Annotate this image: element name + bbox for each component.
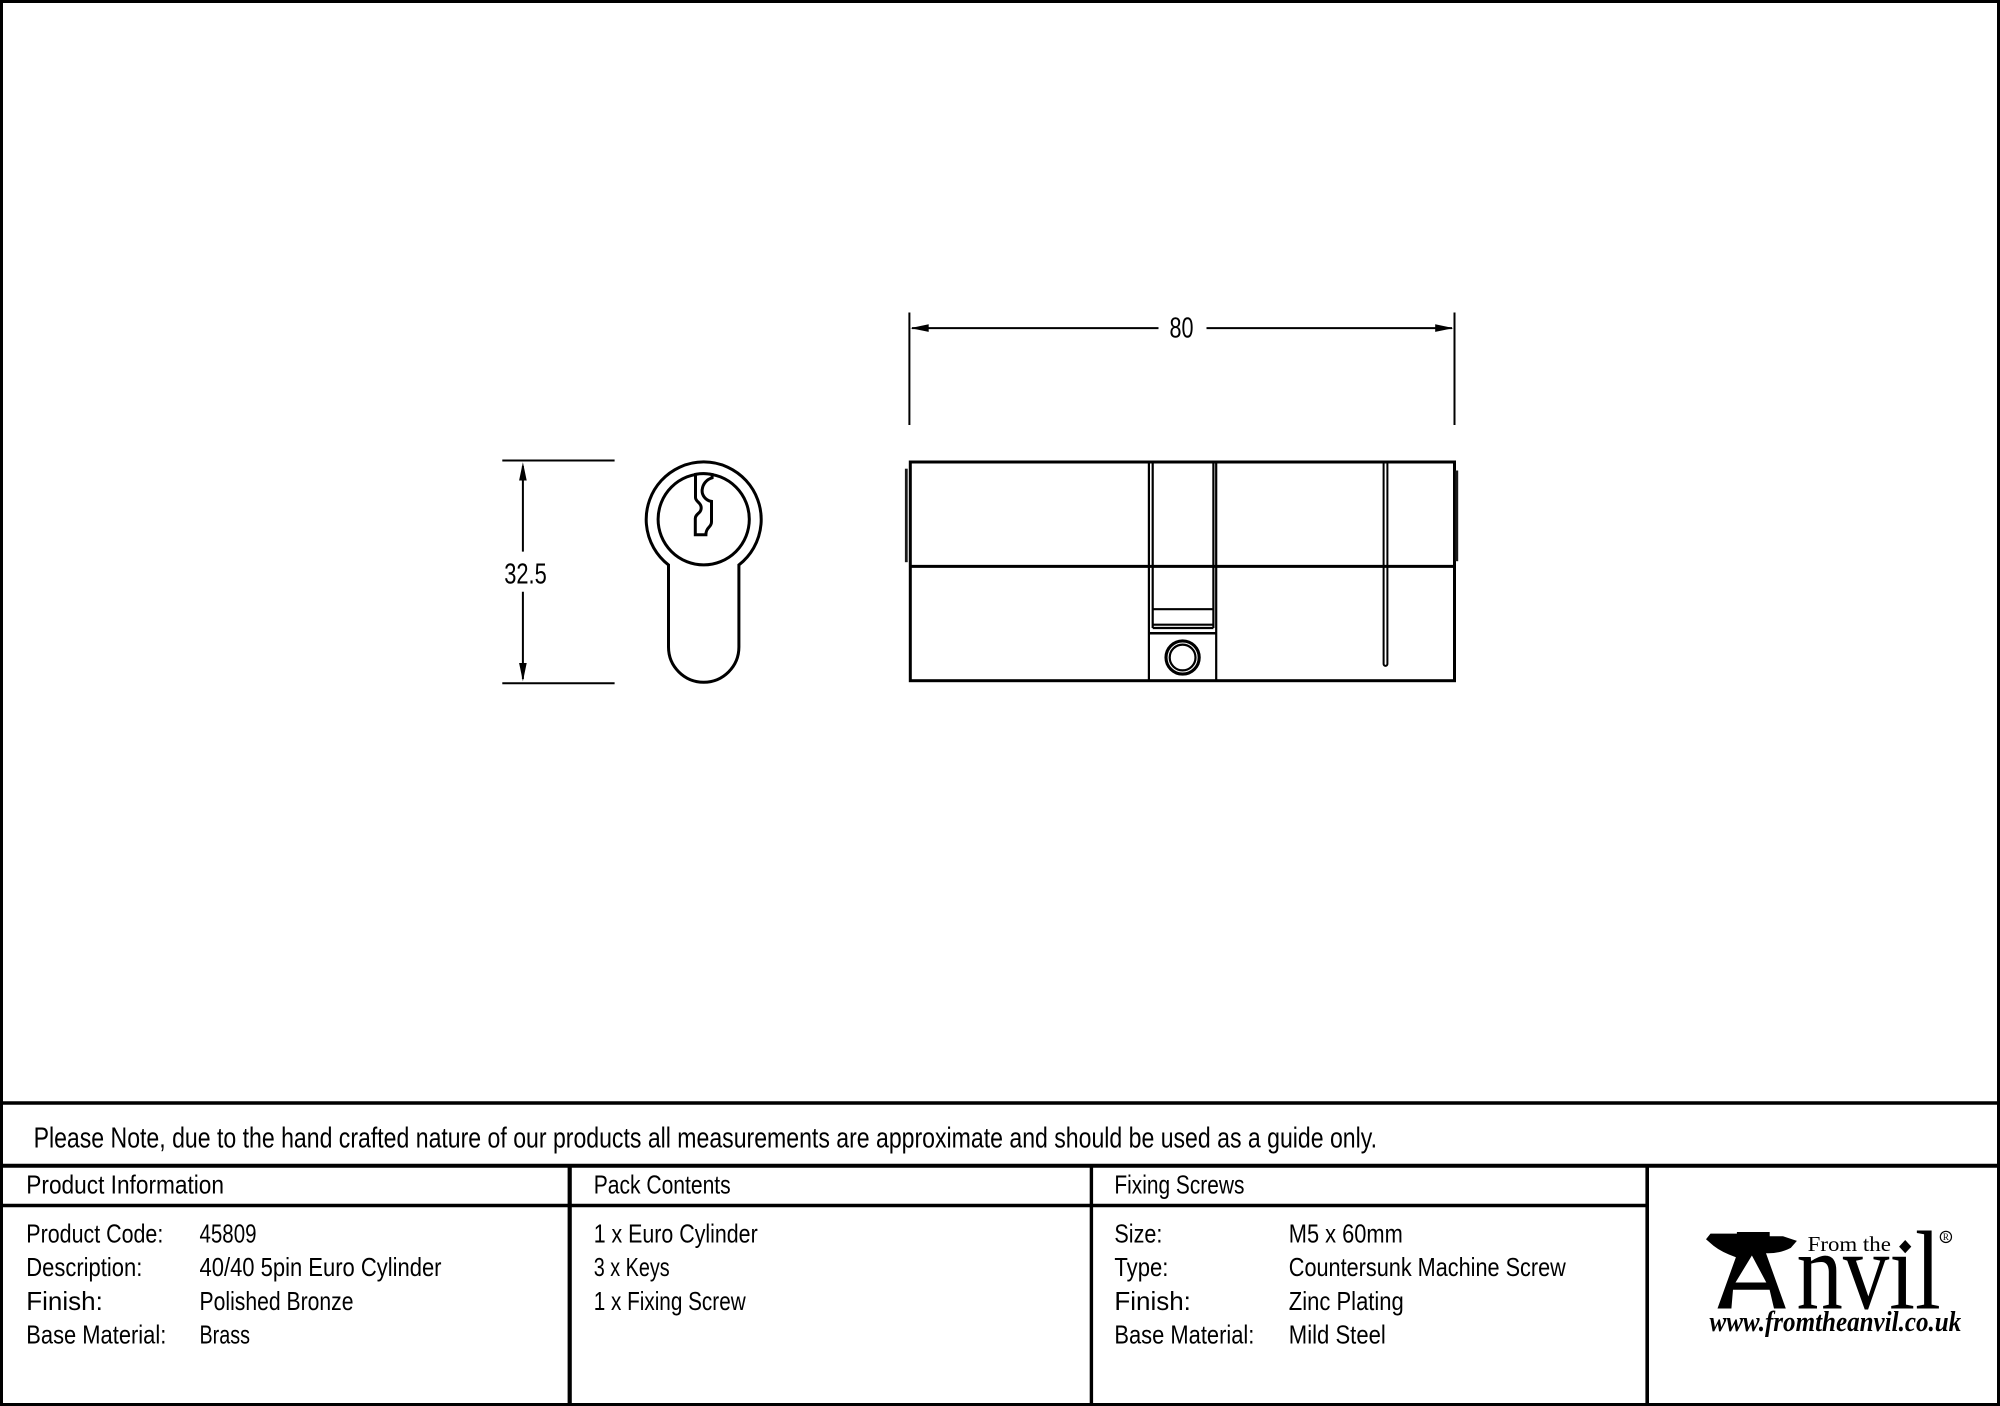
svg-text:1 x Fixing Screw: 1 x Fixing Screw: [594, 1286, 746, 1316]
svg-text:32.5: 32.5: [504, 558, 547, 590]
svg-text:Type:: Type:: [1114, 1252, 1168, 1282]
svg-text:Product Code:: Product Code:: [26, 1219, 163, 1249]
svg-text:Mild Steel: Mild Steel: [1289, 1320, 1386, 1350]
svg-text:Countersunk Machine Screw: Countersunk Machine Screw: [1289, 1252, 1566, 1282]
svg-text:Finish:: Finish:: [1114, 1286, 1191, 1316]
svg-text:3 x Keys: 3 x Keys: [594, 1252, 670, 1282]
svg-text:Zinc Plating: Zinc Plating: [1289, 1286, 1404, 1316]
svg-text:Description:: Description:: [26, 1252, 142, 1282]
svg-text:Brass: Brass: [200, 1320, 251, 1350]
svg-text:40/40 5pin Euro Cylinder: 40/40 5pin Euro Cylinder: [200, 1252, 442, 1282]
svg-text:80: 80: [1170, 312, 1194, 344]
svg-text:Please Note, due to the hand c: Please Note, due to the hand crafted nat…: [34, 1123, 1377, 1155]
svg-text:Polished Bronze: Polished Bronze: [200, 1286, 354, 1316]
svg-text:Fixing Screws: Fixing Screws: [1114, 1169, 1244, 1199]
svg-text:R: R: [1943, 1232, 1949, 1242]
svg-text:Product Information: Product Information: [26, 1169, 224, 1199]
svg-text:45809: 45809: [200, 1219, 257, 1249]
svg-text:Pack Contents: Pack Contents: [594, 1169, 731, 1199]
svg-text:Size:: Size:: [1114, 1219, 1162, 1249]
svg-text:Finish:: Finish:: [26, 1286, 103, 1316]
svg-text:Base Material:: Base Material:: [26, 1320, 166, 1350]
svg-text:Base Material:: Base Material:: [1114, 1320, 1254, 1350]
svg-text:www.fromtheanvil.co.uk: www.fromtheanvil.co.uk: [1710, 1306, 1962, 1338]
svg-text:M5 x 60mm: M5 x 60mm: [1289, 1219, 1403, 1249]
svg-text:1 x Euro Cylinder: 1 x Euro Cylinder: [594, 1219, 758, 1249]
